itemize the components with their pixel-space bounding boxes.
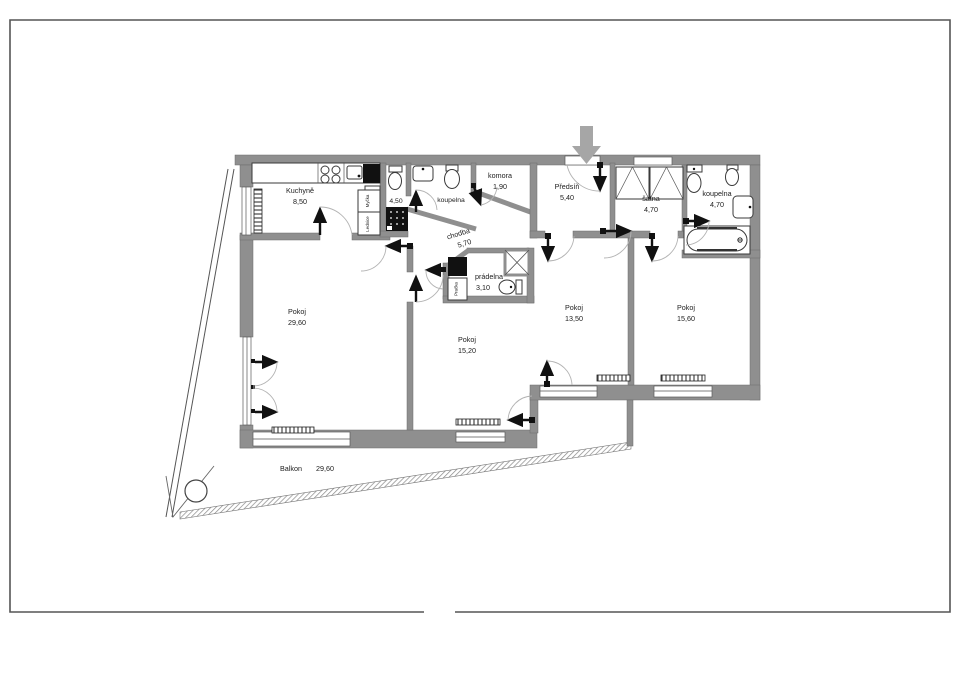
radiator-icon (272, 427, 314, 433)
room-label-pradelna: prádelna (475, 272, 503, 281)
room-area-balkon: 29,60 (316, 464, 334, 473)
room-label-pokoj-a: Pokoj (288, 307, 306, 316)
room-labels: Kuchyně 8,50 4,50 koupelna komora 1,90 P… (280, 171, 732, 473)
balcony-column-icon (185, 480, 207, 502)
dishwasher-label: Myčka (365, 194, 370, 207)
room-area-koupelna-top: 4,70 (710, 200, 724, 209)
kitchen-sink-icon (347, 166, 362, 179)
oven-icon (363, 164, 380, 183)
room-area-chodba: 5,70 (456, 237, 472, 250)
toilet-icon (499, 280, 522, 294)
washbasin-icon (733, 196, 753, 218)
washbasin-icon (413, 166, 433, 181)
radiator-icon (254, 189, 262, 233)
room-area-satna: 4,70 (644, 205, 658, 214)
top-bathroom-fixtures (684, 165, 753, 254)
wall-niche (634, 157, 672, 165)
kitchen-fixtures: Myčka Lednice (252, 163, 380, 235)
room-label-pokoj-d: Pokoj (677, 303, 695, 312)
room-label-pokoj-b: Pokoj (458, 335, 476, 344)
toilet-icon (687, 165, 702, 193)
fridge-label: Lednice (365, 216, 370, 232)
room-area-pokoj-c: 13,50 (565, 314, 583, 323)
page-border (10, 20, 950, 612)
mid-bathroom-fixtures (413, 165, 460, 189)
washer-label: Pračka (454, 282, 459, 296)
floor-plan-canvas: Myčka Lednice (0, 0, 960, 678)
shower-icon (386, 207, 408, 231)
radiator-icon (597, 375, 630, 381)
room-area-komora: 1,90 (493, 182, 507, 191)
room-area-predsin: 5,40 (560, 193, 574, 202)
bathtub-icon (684, 226, 750, 254)
bidet-icon (726, 165, 739, 186)
room-area-pokoj-d: 15,60 (677, 314, 695, 323)
room-label-kuchyne: Kuchyně (286, 186, 314, 195)
floor-plan-drawing: Myčka Lednice (0, 0, 960, 678)
toilet-icon (389, 166, 403, 190)
radiator-icon (661, 375, 705, 381)
room-area-pokoj-b: 15,20 (458, 346, 476, 355)
room-label-satna: šatna (642, 194, 660, 203)
washing-machine-icon (448, 257, 467, 276)
room-label-komora: komora (488, 171, 512, 180)
room-label-balkon: Balkon (280, 464, 302, 473)
room-label-koupelna-top: koupelna (702, 189, 731, 198)
bidet-icon (445, 165, 460, 189)
balcony-railing (180, 442, 631, 519)
room-area-wc: 4,50 (389, 198, 402, 205)
windows (242, 187, 712, 446)
room-label-predsin: Předsíň (555, 182, 580, 191)
room-area-pokoj-a: 29,60 (288, 318, 306, 327)
room-area-pradelna: 3,10 (476, 283, 490, 292)
room-area-kuchyne: 8,50 (293, 197, 307, 206)
room-label-koupelna-mid: koupelna (437, 197, 465, 204)
radiator-icon (456, 419, 500, 425)
room-label-pokoj-c: Pokoj (565, 303, 583, 312)
ventilation-shaft-icon (505, 250, 529, 275)
